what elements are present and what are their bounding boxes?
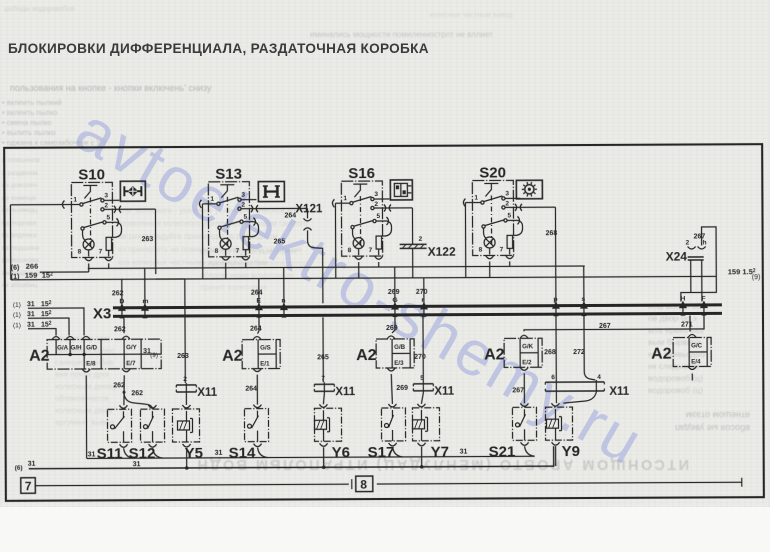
svg-text:A2: A2 bbox=[484, 346, 505, 363]
svg-text:152: 152 bbox=[41, 300, 52, 308]
svg-text:X11: X11 bbox=[609, 386, 629, 398]
svg-text:(6): (6) bbox=[11, 265, 20, 272]
svg-text:E/4: E/4 bbox=[691, 358, 701, 365]
svg-text:8: 8 bbox=[360, 478, 367, 492]
svg-text:S20: S20 bbox=[479, 164, 506, 181]
svg-text:6: 6 bbox=[551, 374, 555, 381]
svg-text:A2: A2 bbox=[651, 346, 672, 363]
svg-text:31: 31 bbox=[133, 461, 141, 468]
svg-text:Y5: Y5 bbox=[185, 445, 203, 462]
svg-text:264: 264 bbox=[245, 386, 257, 393]
svg-text:7: 7 bbox=[25, 479, 32, 493]
svg-text:S17: S17 bbox=[368, 444, 395, 461]
svg-text:3: 3 bbox=[104, 192, 108, 199]
svg-text:G/S: G/S bbox=[260, 345, 271, 352]
svg-text:S11: S11 bbox=[97, 445, 123, 462]
svg-text:X11: X11 bbox=[197, 387, 217, 399]
svg-text:159: 159 bbox=[25, 271, 38, 280]
svg-text:7: 7 bbox=[236, 248, 240, 255]
svg-text:269: 269 bbox=[396, 385, 408, 392]
svg-text:X122: X122 bbox=[428, 245, 456, 259]
svg-text:264: 264 bbox=[251, 290, 263, 297]
svg-text:265: 265 bbox=[274, 238, 286, 245]
svg-text:H: H bbox=[680, 296, 685, 303]
svg-text:262: 262 bbox=[131, 390, 143, 397]
svg-text:X3: X3 bbox=[93, 305, 111, 322]
svg-text:272: 272 bbox=[573, 349, 585, 356]
svg-text:7: 7 bbox=[369, 247, 373, 254]
svg-text:8: 8 bbox=[215, 248, 219, 255]
svg-text:4: 4 bbox=[597, 374, 601, 381]
svg-text:31: 31 bbox=[215, 450, 223, 457]
svg-text:267: 267 bbox=[599, 323, 611, 330]
svg-text:152: 152 bbox=[41, 321, 52, 329]
svg-text:31: 31 bbox=[28, 461, 36, 468]
svg-text:(1): (1) bbox=[13, 322, 21, 329]
svg-text:5: 5 bbox=[376, 213, 380, 220]
svg-text:Y7: Y7 bbox=[431, 444, 449, 461]
svg-text:269: 269 bbox=[388, 289, 400, 296]
svg-text:E/2: E/2 bbox=[522, 359, 532, 366]
svg-text:7: 7 bbox=[500, 246, 504, 253]
svg-text:5: 5 bbox=[507, 212, 511, 219]
svg-text:31: 31 bbox=[27, 301, 35, 308]
svg-text:(6): (6) bbox=[15, 465, 23, 472]
svg-text:(1): (1) bbox=[13, 302, 21, 309]
svg-text:263: 263 bbox=[177, 353, 189, 360]
svg-text:152: 152 bbox=[42, 271, 53, 280]
svg-text:8: 8 bbox=[479, 247, 483, 254]
svg-text:X24: X24 bbox=[666, 250, 688, 264]
svg-text:267: 267 bbox=[512, 387, 524, 394]
svg-text:S13: S13 bbox=[215, 166, 242, 183]
svg-text:(9): (9) bbox=[752, 274, 761, 281]
svg-text:270: 270 bbox=[416, 289, 428, 296]
svg-text:2: 2 bbox=[686, 240, 690, 247]
svg-text:270: 270 bbox=[414, 354, 426, 361]
svg-text:3: 3 bbox=[505, 190, 509, 197]
svg-text:F: F bbox=[701, 295, 705, 302]
svg-text:E/1: E/1 bbox=[260, 361, 270, 368]
svg-text:1: 1 bbox=[210, 196, 214, 203]
svg-text:S14: S14 bbox=[229, 445, 256, 462]
svg-text:1: 1 bbox=[73, 196, 77, 203]
svg-text:A2: A2 bbox=[222, 348, 243, 365]
svg-text:8: 8 bbox=[78, 248, 82, 255]
svg-text:S10: S10 bbox=[78, 166, 105, 183]
svg-text:264: 264 bbox=[250, 326, 262, 333]
svg-text:269: 269 bbox=[386, 325, 398, 332]
svg-text:X11: X11 bbox=[434, 386, 454, 398]
svg-text:3: 3 bbox=[374, 191, 378, 198]
svg-text:265: 265 bbox=[317, 354, 329, 361]
svg-text:271: 271 bbox=[681, 321, 693, 328]
svg-text:G/K: G/K bbox=[522, 343, 534, 350]
svg-text:h: h bbox=[703, 239, 707, 246]
svg-text:31: 31 bbox=[27, 311, 35, 318]
svg-text:5: 5 bbox=[106, 214, 110, 221]
svg-text:2: 2 bbox=[374, 201, 378, 208]
svg-text:2: 2 bbox=[419, 236, 423, 243]
svg-text:p: p bbox=[553, 296, 557, 303]
svg-text:268: 268 bbox=[544, 349, 556, 356]
svg-text:Y6: Y6 bbox=[332, 444, 350, 461]
svg-text:262: 262 bbox=[114, 326, 126, 333]
svg-text:G/Y: G/Y bbox=[126, 344, 138, 351]
svg-text:31: 31 bbox=[27, 322, 35, 329]
svg-text:A2: A2 bbox=[356, 347, 377, 364]
svg-text:X11: X11 bbox=[335, 386, 355, 398]
svg-text:G/H: G/H bbox=[71, 344, 83, 351]
svg-text:7: 7 bbox=[99, 248, 103, 255]
svg-text:E/3: E/3 bbox=[394, 360, 404, 367]
svg-text:5: 5 bbox=[243, 214, 247, 221]
svg-text:2: 2 bbox=[241, 202, 245, 209]
svg-text:266: 266 bbox=[26, 262, 39, 271]
svg-text:Y9: Y9 bbox=[562, 443, 580, 460]
svg-text:7: 7 bbox=[321, 375, 325, 382]
svg-text:2: 2 bbox=[104, 202, 108, 209]
svg-text:S12: S12 bbox=[129, 445, 156, 462]
svg-text:2: 2 bbox=[183, 376, 187, 383]
svg-text:1: 1 bbox=[474, 195, 478, 202]
svg-text:S16: S16 bbox=[348, 165, 375, 182]
svg-text:E/8: E/8 bbox=[86, 360, 96, 367]
svg-text:G/A: G/A bbox=[57, 345, 69, 352]
svg-text:(1): (1) bbox=[13, 312, 21, 319]
svg-text:263: 263 bbox=[142, 236, 154, 243]
svg-text:262: 262 bbox=[113, 382, 125, 389]
svg-text:268: 268 bbox=[546, 230, 558, 237]
svg-text:152: 152 bbox=[41, 310, 52, 318]
svg-text:G/D: G/D bbox=[86, 344, 98, 351]
svg-text:S21: S21 bbox=[489, 443, 516, 460]
svg-text:1: 1 bbox=[343, 195, 347, 202]
svg-text:E/7: E/7 bbox=[126, 360, 136, 367]
svg-text:5: 5 bbox=[420, 375, 424, 382]
svg-text:G/B: G/B bbox=[394, 344, 406, 351]
svg-text:31: 31 bbox=[460, 449, 468, 456]
svg-text:31: 31 bbox=[88, 451, 96, 458]
svg-text:A2: A2 bbox=[29, 348, 50, 365]
svg-text:G/C: G/C bbox=[691, 342, 703, 349]
svg-text:X121: X121 bbox=[295, 203, 323, 215]
svg-text:(9): (9) bbox=[150, 352, 158, 359]
svg-text:3: 3 bbox=[241, 192, 245, 199]
svg-text:2: 2 bbox=[505, 200, 509, 207]
svg-text:(1): (1) bbox=[11, 274, 20, 281]
svg-text:8: 8 bbox=[348, 247, 352, 254]
